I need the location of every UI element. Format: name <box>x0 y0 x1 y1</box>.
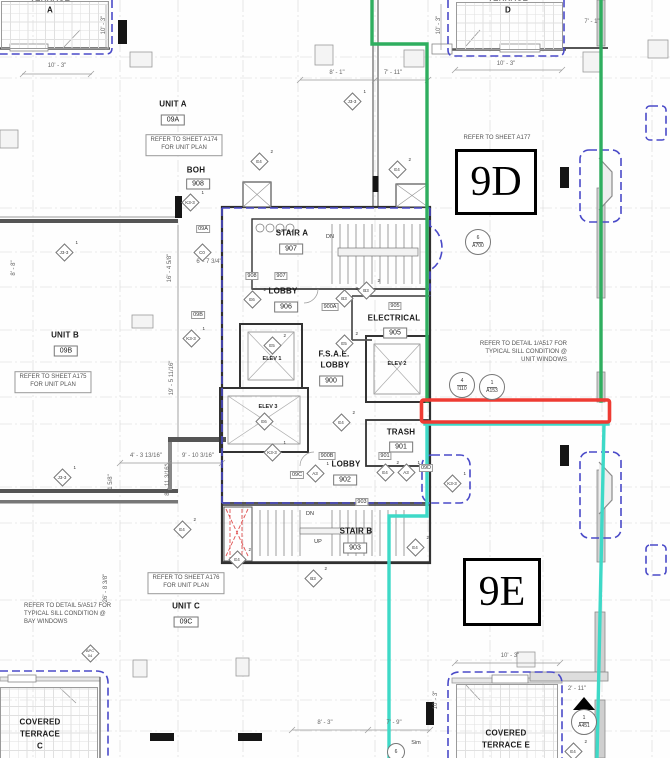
terrace-e-label-2: TERRACE E <box>482 741 530 750</box>
dim-terrace-d-width: 10' - 3" <box>497 61 516 67</box>
diamond-label: K3-3 <box>182 329 200 347</box>
keynote-diamond: E42 <box>388 160 406 178</box>
terrace-d-label-1: TERRACE <box>488 0 528 3</box>
boh-label: BOH <box>187 166 205 175</box>
note-line: BAY WINDOWS <box>24 619 132 627</box>
callout-ref: A153 <box>486 388 498 395</box>
stair-b-tag: 903 <box>343 543 367 554</box>
diamond-label: C0 <box>193 243 211 261</box>
keynote-diamond: B32 <box>304 569 322 587</box>
dim-left-2: 26' - 8 3/8" <box>103 574 109 603</box>
note-line: UNIT WINDOWS <box>455 357 567 365</box>
keynote-diamond: K3-31 <box>263 443 281 461</box>
callout-ref: A700 <box>472 243 484 250</box>
terrace-c-label-2: TERRACE <box>20 730 60 739</box>
terrace-c-label-3: C <box>37 742 43 751</box>
dim-terrace-e-width: 10' - 3" <box>501 653 520 659</box>
diamond-sup: 1 <box>363 89 366 94</box>
door-tag-900b: 900B <box>319 452 336 460</box>
keynote-diamond: A31 <box>397 463 415 481</box>
diamond-label: J3-3 <box>53 468 71 486</box>
dim-terrace-d-height: 10' - 3" <box>436 16 442 35</box>
dim-terrace-d-right: 7' - 1" <box>584 19 599 25</box>
note-detail-5a517: REFER TO DETAIL 5/A517 FOR TYPICAL SILL … <box>24 603 132 626</box>
keynote-diamond: B32 <box>357 281 375 299</box>
note-line: FOR UNIT PLAN <box>19 382 86 390</box>
keynote-diamond: APC04 <box>81 644 99 662</box>
keynote-diamond: B32 <box>335 289 353 307</box>
diamond-label: E4 <box>388 160 406 178</box>
boh-tag: 908 <box>186 179 210 190</box>
diamond-sup: 2 <box>584 739 587 744</box>
diamond-label: B3 <box>335 289 353 307</box>
diamond-sup: 2 <box>270 149 273 154</box>
door-tag-903: 903 <box>355 498 368 506</box>
note-line: REFER TO SHEET A176 <box>152 575 219 583</box>
unit-b-tag: 09B <box>54 346 78 357</box>
callout-number: 4 <box>457 378 468 386</box>
door-tag-09a: 09A <box>196 225 210 233</box>
diamond-label: B3 <box>357 281 375 299</box>
diamond-sup: 04 <box>81 653 99 658</box>
dim-bottom-2: 7' - 9" <box>386 720 401 726</box>
note-line: TYPICAL SILL CONDITION @ <box>24 611 132 619</box>
callout-circle-i110: 4 I110 <box>449 372 475 398</box>
diamond-sup: 2 <box>324 566 327 571</box>
callout-circle-sim: 6 <box>387 743 405 758</box>
diamond-label: E6 <box>243 290 261 308</box>
terrace-a-hatch <box>1 1 109 49</box>
dim-terrace-a-width: 10' - 3" <box>48 63 67 69</box>
diamond-sup: 1 <box>73 465 76 470</box>
diamond-label: E4 <box>332 413 350 431</box>
callout-number: 6 <box>395 749 398 755</box>
trash-tag: 901 <box>389 442 413 453</box>
red-highlight <box>422 400 610 422</box>
dim-top-1: 8' - 1" <box>329 70 344 76</box>
fsae-lobby-label-2: LOBBY <box>321 361 350 370</box>
note-line: FOR UNIT PLAN <box>152 583 219 591</box>
keynote-diamond: K3-31 <box>182 329 200 347</box>
diamond-label: E5 <box>263 336 281 354</box>
door-tag-09c: 09C <box>290 471 304 479</box>
diamond-sup: 1 <box>202 326 205 331</box>
note-a177: REFER TO SHEET A177 <box>463 135 530 143</box>
dim-bottom-1: 8' - 3" <box>317 720 332 726</box>
sim-label: Sim <box>411 740 420 746</box>
fsae-lobby-tag: 900 <box>319 376 343 387</box>
door-tag-09d: 09D <box>419 464 433 472</box>
unit-a-label: UNIT A <box>159 100 187 109</box>
diamond-sup: 2 <box>352 410 355 415</box>
dim-core-3: 19' - 5 11/16" <box>169 361 175 396</box>
diamond-label: E6 <box>255 412 273 430</box>
keynote-diamond: K3-31 <box>443 474 461 492</box>
diamond-label: J3-3 <box>55 243 73 261</box>
stair-a-dn: DN <box>326 234 334 240</box>
diamond-label: B3 <box>304 569 322 587</box>
keynote-diamond: E62 <box>243 290 261 308</box>
diamond-label: K3-3 <box>443 474 461 492</box>
note-line: REFER TO SHEET A175 <box>19 374 86 382</box>
diamond-sup: 2 <box>408 157 411 162</box>
keynote-diamond: E42 <box>564 742 582 758</box>
terrace-a-label-2: A <box>47 6 53 15</box>
note-detail-1a517: REFER TO DETAIL 1/A517 FOR TYPICAL SILL … <box>455 341 567 364</box>
dim-left-1: 8' - 8" <box>11 260 17 275</box>
diamond-label: K3-3 <box>181 193 199 211</box>
terrace-a-label-1: TERRACE <box>30 0 70 3</box>
diamond-label: E4 <box>173 520 191 538</box>
keynote-diamond: C0 <box>193 243 211 261</box>
diamond-sup: 1 <box>463 471 466 476</box>
unit-a-tag: 09A <box>161 115 185 126</box>
stair-b-label: STAIR B <box>340 527 373 536</box>
keynote-diamond: E42 <box>406 538 424 556</box>
door-tag-907: 907 <box>274 272 287 280</box>
door-tag-09b: 09B <box>191 311 205 319</box>
electrical-label: ELECTRICAL <box>368 314 421 323</box>
stair-b-dn: DN <box>306 511 314 517</box>
keynote-diamond: J3-31 <box>53 468 71 486</box>
dim-core-6: 8' - 11 3/16" <box>165 464 171 496</box>
dim-core-4: 4' - 3 13/16" <box>130 453 162 459</box>
keynote-diamond: E42 <box>376 463 394 481</box>
diamond-label: E5 <box>335 334 353 352</box>
diamond-label: E4 <box>250 152 268 170</box>
note-a176: REFER TO SHEET A176 FOR UNIT PLAN <box>147 572 224 594</box>
elev-1-keynote-diamond: E5 2 <box>263 336 281 354</box>
callout-number: 6 <box>473 235 484 243</box>
door-tag-901: 901 <box>378 452 391 460</box>
callout-circle-a700: 6 A700 <box>465 229 491 255</box>
callout-circle-a153: 1 A153 <box>479 374 505 400</box>
diamond-label: E4 <box>228 550 246 568</box>
diamond-sup: 2 <box>377 278 380 283</box>
keynote-diamond: E52 <box>335 334 353 352</box>
unit-c-tag: 09C <box>174 617 199 628</box>
diamond-sup: 2 <box>248 547 251 552</box>
terrace-c-label-1: COVERED <box>20 718 61 727</box>
note-line: REFER TO DETAIL 1/A517 FOR <box>455 341 567 349</box>
electrical-tag: 905 <box>383 328 407 339</box>
elev-3-label: ELEV 3 <box>259 404 278 410</box>
terrace-d-label-2: D <box>505 6 511 15</box>
note-a174: REFER TO SHEET A174 FOR UNIT PLAN <box>145 134 222 156</box>
note-line: FOR UNIT PLAN <box>150 145 217 153</box>
lobby-902-label: LOBBY <box>332 460 361 469</box>
diamond-label: E4 <box>376 463 394 481</box>
trash-label: TRASH <box>387 428 416 437</box>
diamond-label: E4 <box>406 538 424 556</box>
diamond-sup: 1 <box>201 190 204 195</box>
keynote-diamond: J3-31 <box>55 243 73 261</box>
section-marker-a451: 1 A451 <box>571 709 597 735</box>
keynote-diamond: J3-31 <box>343 92 361 110</box>
dim-terrace-e-right: 2' - 11" <box>568 686 586 692</box>
elev-1-label: ELEV 1 <box>263 356 282 362</box>
note-line: REFER TO SHEET A174 <box>150 137 217 145</box>
area-label-9d: 9D <box>455 149 537 215</box>
area-label-9e: 9E <box>463 558 541 626</box>
keynote-diamond: K3-31 <box>181 193 199 211</box>
lobby-902-tag: 902 <box>333 475 357 486</box>
diamond-label: E4 <box>564 742 582 758</box>
note-a175: REFER TO SHEET A175 FOR UNIT PLAN <box>14 371 91 393</box>
door-tag-905: 905 <box>388 302 401 310</box>
keynote-diamond: E42 <box>228 550 246 568</box>
diamond-label: J3-3 <box>343 92 361 110</box>
diamond-sup: 2 <box>283 333 286 338</box>
dim-terrace-e-height: 10' - 3" <box>433 691 439 710</box>
diamond-sup: 2 <box>263 287 266 292</box>
elev-2-label: ELEV 2 <box>388 361 407 367</box>
callout-number: 1 <box>579 715 590 723</box>
callout-ref: A451 <box>578 723 590 730</box>
terrace-e-label-1: COVERED <box>486 729 527 738</box>
diamond-sup: 1 <box>326 461 329 466</box>
unit-b-label: UNIT B <box>51 331 79 340</box>
dim-core-7: 1 5/8" <box>108 474 114 489</box>
diamond-sup: 2 <box>426 535 429 540</box>
door-tag-908: 908 <box>245 272 258 280</box>
lobby-906-label: LOBBY <box>269 287 298 296</box>
dim-core-5: 9' - 10 3/16" <box>182 453 214 459</box>
keynote-diamond: E42 <box>250 152 268 170</box>
elev-3-keynote-diamond: E6 <box>255 412 273 430</box>
note-line: REFER TO DETAIL 5/A517 FOR <box>24 603 132 611</box>
diamond-sup: 1 <box>283 440 286 445</box>
floor-plan-canvas: TERRACE A TERRACE D UNIT A 09A BOH 908 S… <box>0 0 670 758</box>
keynote-diamond: E42 <box>332 413 350 431</box>
unit-c-label: UNIT C <box>172 602 200 611</box>
diamond-sup: 2 <box>193 517 196 522</box>
dim-core-1: 16' - 4 5/8" <box>167 254 173 283</box>
diamond-label: A3 <box>306 464 324 482</box>
dim-terrace-a-height: 10' - 3" <box>101 16 107 35</box>
keynote-diamond: E42 <box>173 520 191 538</box>
diamond-label: A3 <box>397 463 415 481</box>
callout-number: 1 <box>487 380 498 388</box>
lobby-906-tag: 906 <box>274 302 298 313</box>
diamond-sup: 1 <box>75 240 78 245</box>
diamond-sup: 2 <box>355 331 358 336</box>
stair-a-label: STAIR A <box>276 229 309 238</box>
dim-top-2: 7' - 11" <box>384 70 402 76</box>
callout-ref: I110 <box>457 386 466 393</box>
stair-a-tag: 907 <box>279 244 303 255</box>
note-line: TYPICAL SILL CONDITION @ <box>455 349 567 357</box>
diamond-label: K3-3 <box>263 443 281 461</box>
stair-b-up: UP <box>314 539 322 545</box>
diamond-sup: 1 <box>417 460 420 465</box>
keynote-diamond: A31 <box>306 464 324 482</box>
